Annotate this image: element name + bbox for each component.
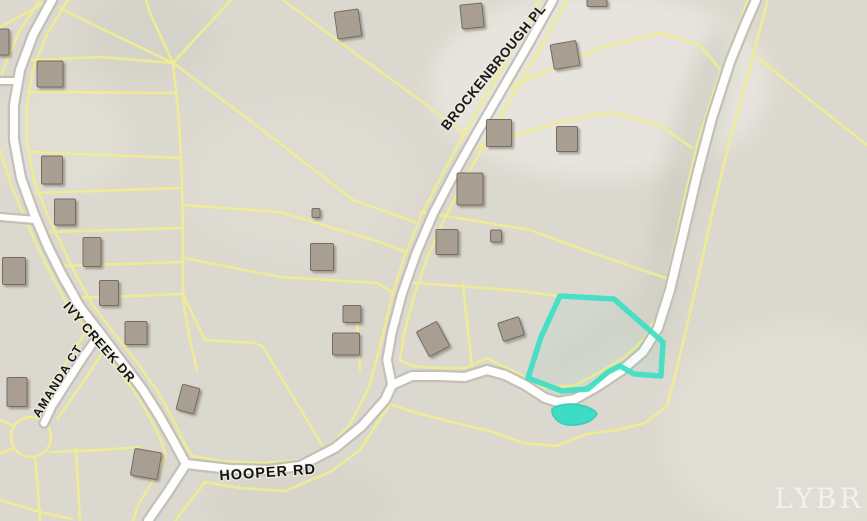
building	[491, 230, 502, 242]
building	[37, 61, 63, 87]
building	[3, 258, 26, 285]
parcel-line	[28, 92, 176, 93]
building	[312, 209, 320, 218]
building	[550, 40, 580, 69]
road-label-amanda-ct: AMANDA CT	[30, 342, 86, 420]
building	[42, 156, 63, 184]
parcel-line	[62, 262, 183, 266]
parcel-line	[463, 284, 472, 366]
building	[587, 0, 607, 7]
parcel-line	[175, 482, 205, 521]
building	[176, 384, 200, 414]
watermark-layer: LYBR	[775, 482, 864, 515]
road-hooper-rd[interactable]	[186, 385, 392, 470]
building	[125, 322, 147, 345]
building	[100, 281, 119, 306]
parcel-line	[50, 447, 140, 452]
building	[7, 378, 27, 407]
parcel-line	[50, 228, 182, 232]
watermark: LYBR	[775, 482, 864, 515]
parcel-line	[76, 449, 80, 521]
pond	[552, 404, 597, 425]
building	[416, 321, 449, 357]
building	[333, 333, 360, 355]
parcel-line	[758, 58, 867, 145]
parcel-line	[0, 420, 14, 426]
parcel-line	[184, 258, 392, 292]
parcel-map: BROCKENBROUGH PLIVY CREEK DRAMANDA CTHOO…	[0, 0, 867, 521]
parcel-line	[76, 294, 184, 298]
building	[436, 230, 458, 255]
parcel-line	[183, 295, 322, 445]
parcel-line	[0, 449, 12, 453]
building	[0, 29, 9, 55]
building	[83, 238, 101, 267]
map-canvas[interactable]: BROCKENBROUGH PLIVY CREEK DRAMANDA CTHOO…	[0, 0, 867, 521]
building	[487, 120, 512, 147]
building	[457, 173, 483, 205]
building	[557, 127, 578, 152]
parcel-line	[0, 500, 72, 519]
parcel-line	[400, 282, 558, 296]
building	[55, 199, 76, 225]
road-west-stub-lower[interactable]	[0, 217, 36, 220]
terrain-patch	[180, 100, 420, 260]
terrain-shading	[0, 0, 867, 521]
building	[311, 244, 334, 271]
building	[460, 3, 484, 29]
building	[498, 317, 525, 342]
building	[334, 9, 362, 39]
building	[130, 448, 161, 479]
building	[343, 306, 361, 323]
